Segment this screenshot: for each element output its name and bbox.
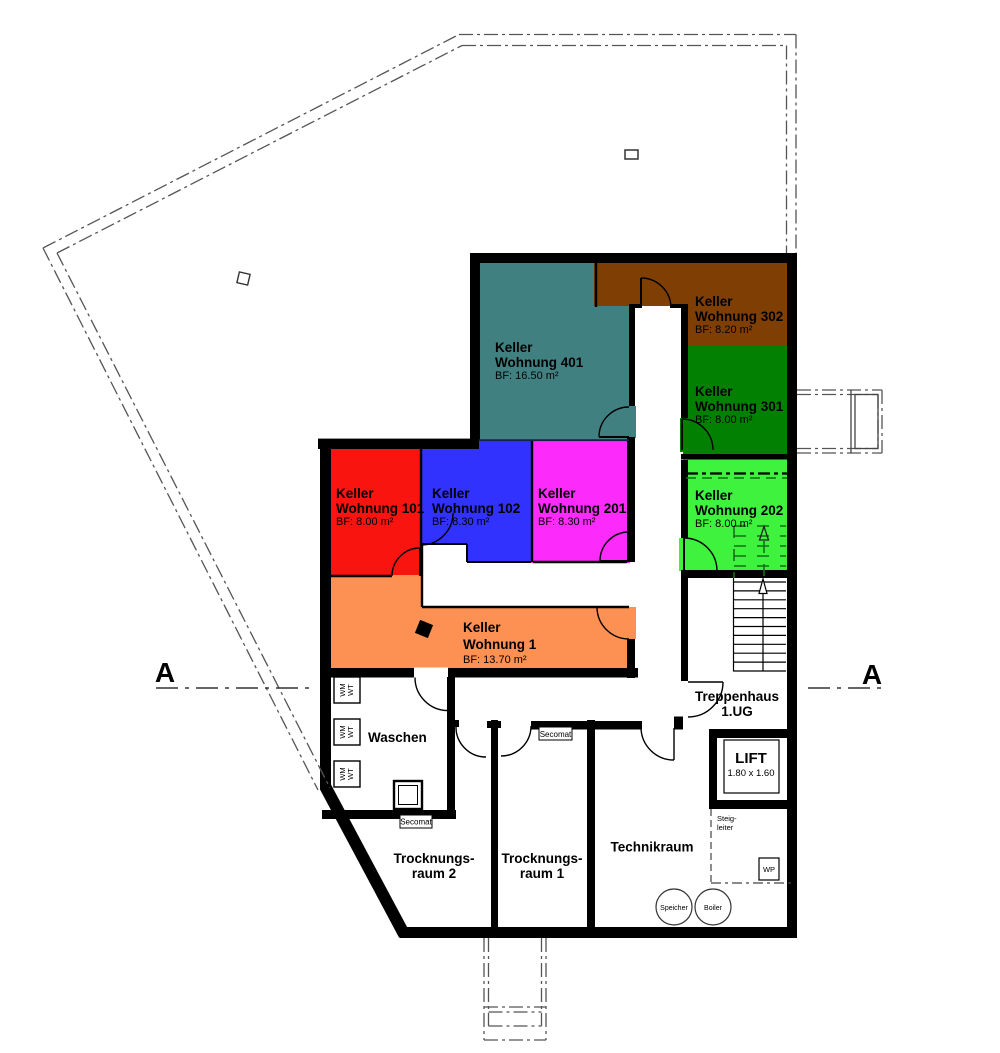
svg-text:BF: 13.70 m²: BF: 13.70 m² <box>463 654 527 666</box>
svg-text:Keller: Keller <box>695 488 733 503</box>
svg-text:WT: WT <box>346 684 355 696</box>
svg-text:BF: 8.00 m²: BF: 8.00 m² <box>695 414 753 426</box>
svg-text:BF: 8.00 m²: BF: 8.00 m² <box>336 516 394 528</box>
svg-text:Keller: Keller <box>695 294 733 309</box>
svg-text:BF: 8.00 m²: BF: 8.00 m² <box>695 518 753 530</box>
svg-text:Wohnung 302: Wohnung 302 <box>695 309 783 324</box>
svg-text:BF: 8.30 m²: BF: 8.30 m² <box>432 516 490 528</box>
svg-text:Keller: Keller <box>538 486 576 501</box>
svg-text:Wohnung 102: Wohnung 102 <box>432 501 520 516</box>
svg-text:Secomat: Secomat <box>400 818 432 827</box>
svg-text:Keller: Keller <box>495 340 533 355</box>
svg-text:Wohnung 202: Wohnung 202 <box>695 503 783 518</box>
svg-text:Wohnung 101: Wohnung 101 <box>336 501 425 516</box>
svg-text:raum 1: raum 1 <box>520 866 565 881</box>
svg-text:Keller: Keller <box>432 486 470 501</box>
svg-text:Keller: Keller <box>336 486 374 501</box>
svg-text:Boiler: Boiler <box>704 905 723 912</box>
svg-text:Keller: Keller <box>463 620 501 635</box>
svg-text:leiter: leiter <box>717 823 734 832</box>
svg-text:LIFT: LIFT <box>735 750 767 767</box>
svg-text:Steig-: Steig- <box>717 814 737 823</box>
svg-text:BF: 8.30 m²: BF: 8.30 m² <box>538 516 596 528</box>
svg-text:1.80 x 1.60: 1.80 x 1.60 <box>727 768 774 779</box>
svg-text:raum 2: raum 2 <box>412 866 456 881</box>
svg-text:Wohnung 301: Wohnung 301 <box>695 399 784 414</box>
svg-text:BF: 16.50 m²: BF: 16.50 m² <box>495 370 559 382</box>
svg-text:Treppenhaus: Treppenhaus <box>695 689 779 704</box>
svg-text:Keller: Keller <box>695 384 733 399</box>
svg-text:A: A <box>155 657 175 688</box>
svg-text:WP: WP <box>763 865 775 874</box>
svg-text:Speicher: Speicher <box>660 905 688 912</box>
svg-text:Wohnung 401: Wohnung 401 <box>495 355 584 370</box>
svg-text:1.UG: 1.UG <box>721 704 753 719</box>
svg-text:Trocknungs-: Trocknungs- <box>501 851 582 866</box>
svg-text:Technikraum: Technikraum <box>610 840 693 855</box>
svg-text:Trocknungs-: Trocknungs- <box>393 851 474 866</box>
svg-text:WT: WT <box>346 768 355 780</box>
svg-text:BF: 8.20 m²: BF: 8.20 m² <box>695 324 753 336</box>
svg-text:Wohnung 201: Wohnung 201 <box>538 501 627 516</box>
svg-text:A: A <box>862 659 882 690</box>
svg-text:Wohnung 1: Wohnung 1 <box>463 637 537 652</box>
svg-text:Secomat: Secomat <box>540 730 572 739</box>
svg-text:WT: WT <box>346 726 355 738</box>
svg-text:Waschen: Waschen <box>368 730 427 745</box>
